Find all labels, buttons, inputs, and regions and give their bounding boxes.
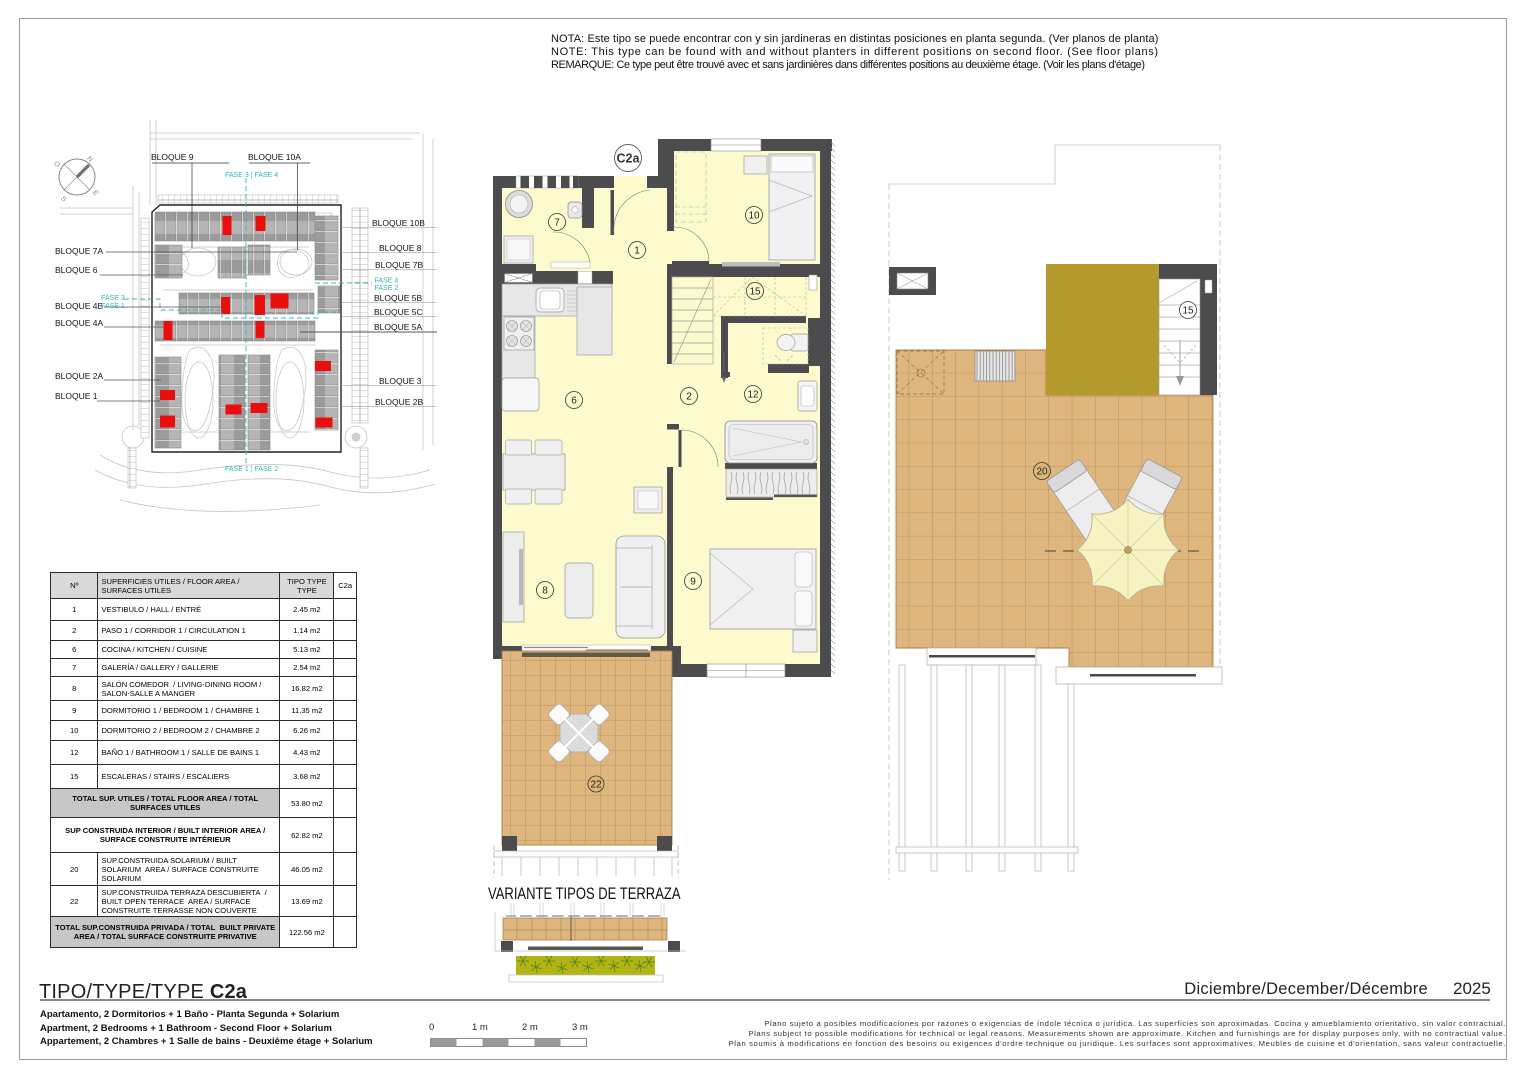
svg-text:9: 9	[690, 577, 696, 588]
svg-text:O: O	[52, 160, 61, 169]
svg-text:BLOQUE 1: BLOQUE 1	[55, 391, 98, 401]
svg-text:BLOQUE 7B: BLOQUE 7B	[375, 260, 424, 270]
svg-text:BLOQUE 6: BLOQUE 6	[55, 265, 98, 275]
svg-text:6: 6	[571, 396, 577, 407]
svg-text:BLOQUE 8: BLOQUE 8	[379, 243, 422, 253]
svg-text:BLOQUE 9: BLOQUE 9	[151, 152, 194, 162]
svg-text:FASE 1: FASE 1	[101, 303, 125, 310]
svg-text:12: 12	[747, 390, 759, 401]
svg-text:7: 7	[554, 218, 560, 229]
svg-text:VARIANTE TIPOS DE TERRAZA: VARIANTE TIPOS DE TERRAZA	[488, 886, 681, 904]
svg-text:15: 15	[749, 287, 761, 298]
svg-text:BLOQUE 3: BLOQUE 3	[379, 376, 422, 386]
svg-text:2: 2	[686, 392, 692, 403]
svg-text:BLOQUE 2B: BLOQUE 2B	[375, 397, 424, 407]
svg-text:BLOQUE 5C: BLOQUE 5C	[374, 307, 423, 317]
svg-text:BLOQUE 4A: BLOQUE 4A	[55, 318, 104, 328]
svg-text:1: 1	[634, 246, 640, 257]
svg-text:FASE 3 ¦ FASE 4: FASE 3 ¦ FASE 4	[225, 172, 278, 179]
svg-text:10: 10	[748, 211, 760, 222]
svg-text:BLOQUE 7A: BLOQUE 7A	[55, 246, 104, 256]
svg-text:BLOQUE 5B: BLOQUE 5B	[374, 293, 423, 303]
svg-text:BLOQUE 10B: BLOQUE 10B	[372, 218, 425, 228]
svg-text:N: N	[85, 155, 94, 164]
svg-text:S: S	[59, 195, 67, 204]
svg-text:BLOQUE 4B: BLOQUE 4B	[55, 301, 104, 311]
svg-text:20: 20	[1036, 467, 1048, 478]
svg-text:E: E	[91, 189, 99, 198]
svg-text:15: 15	[1182, 306, 1194, 317]
svg-text:BLOQUE 10A: BLOQUE 10A	[248, 152, 301, 162]
svg-text:FASE 3: FASE 3	[101, 295, 125, 302]
svg-text:FASE 4: FASE 4	[375, 278, 399, 285]
svg-text:FASE 2: FASE 2	[375, 285, 399, 292]
svg-text:22: 22	[590, 780, 602, 791]
svg-text:BLOQUE 5A: BLOQUE 5A	[374, 322, 423, 332]
svg-text:8: 8	[542, 586, 548, 597]
svg-text:FASE 1 ¦ FASE 2: FASE 1 ¦ FASE 2	[225, 466, 278, 473]
svg-text:BLOQUE 2A: BLOQUE 2A	[55, 371, 104, 381]
svg-text:C2a: C2a	[617, 152, 641, 166]
